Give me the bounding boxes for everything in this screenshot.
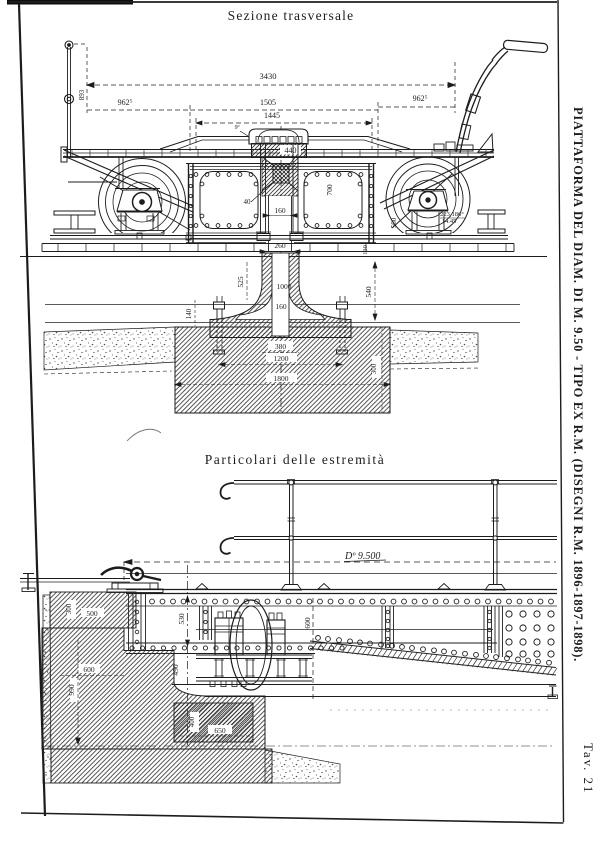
svg-text:14.45: 14.45	[442, 218, 457, 225]
svg-text:1445: 1445	[264, 111, 280, 120]
svg-text:1800: 1800	[274, 374, 289, 383]
svg-text:300: 300	[65, 603, 73, 614]
svg-text:300: 300	[370, 363, 378, 374]
svg-text:1505: 1505	[260, 98, 276, 107]
svg-text:500: 500	[86, 609, 98, 618]
svg-text:400: 400	[188, 716, 196, 727]
svg-text:525: 525	[236, 276, 245, 288]
svg-text:600: 600	[303, 617, 312, 629]
svg-text:130: 130	[362, 245, 369, 255]
svg-text:260: 260	[274, 241, 286, 250]
svg-text:600: 600	[83, 665, 95, 674]
svg-text:160: 160	[275, 302, 287, 311]
svg-text:540: 540	[364, 286, 373, 298]
svg-text:990: 990	[67, 684, 76, 696]
svg-text:1000: 1000	[277, 282, 292, 291]
svg-text:40: 40	[244, 198, 252, 206]
svg-text:Sezione trasversale: Sezione trasversale	[228, 8, 355, 23]
svg-text:PIATTAFORMA DEL DIAM. DI M. 9: PIATTAFORMA DEL DIAM. DI M. 9.50 - TIPO …	[571, 107, 585, 662]
svg-text:3430: 3430	[260, 71, 277, 81]
svg-text:Tav. 21: Tav. 21	[581, 743, 596, 794]
svg-text:Particolari delle estremità: Particolari delle estremità	[205, 452, 386, 467]
svg-text:160: 160	[274, 206, 286, 215]
svg-text:700: 700	[325, 184, 334, 196]
svg-text:1200: 1200	[274, 354, 289, 363]
svg-text:380: 380	[275, 342, 287, 351]
svg-text:140: 140	[185, 308, 193, 319]
svg-text:560: 560	[390, 217, 398, 228]
svg-text:893: 893	[78, 89, 86, 100]
svg-text:440: 440	[285, 146, 297, 155]
svg-text:223,186°: 223,186°	[440, 211, 464, 218]
svg-text:530: 530	[177, 613, 186, 625]
svg-text:650: 650	[214, 726, 226, 735]
svg-text:9º: 9º	[235, 125, 240, 131]
